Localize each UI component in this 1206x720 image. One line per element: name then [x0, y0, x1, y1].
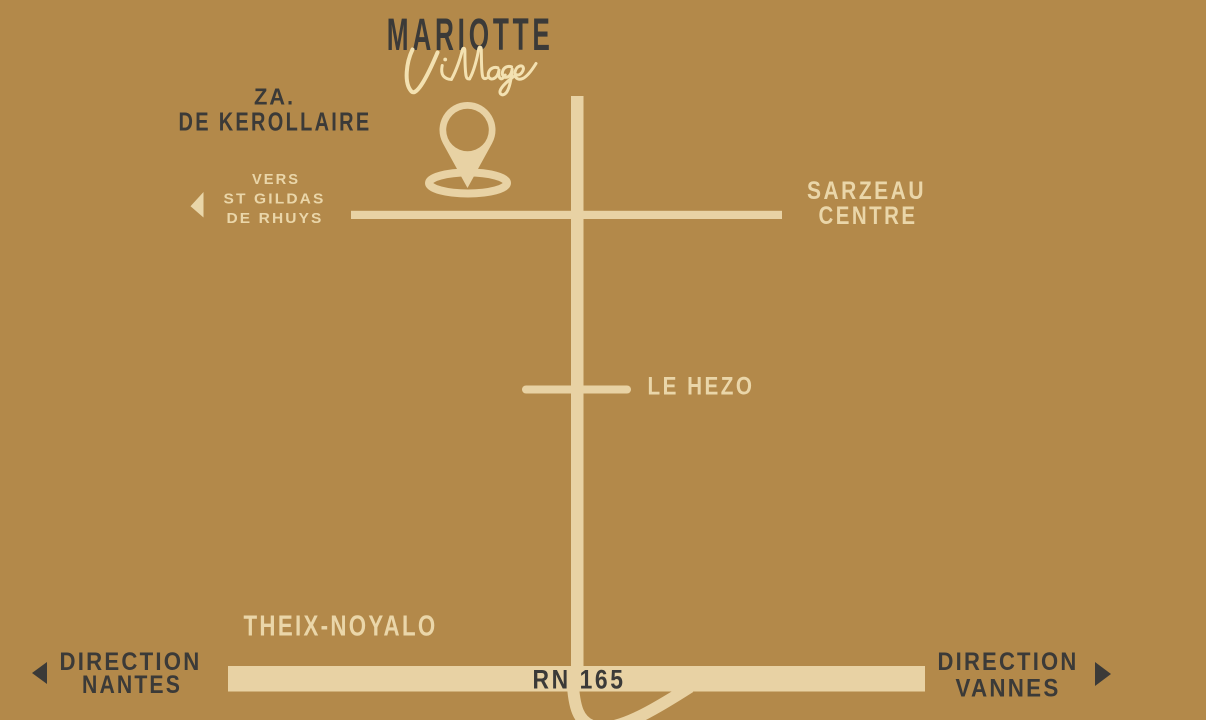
- svg-text:LE HEZO: LE HEZO: [648, 372, 755, 400]
- svg-text:DIRECTION: DIRECTION: [938, 648, 1079, 676]
- svg-text:RN 165: RN 165: [533, 665, 626, 695]
- svg-text:VERS: VERS: [252, 172, 300, 188]
- svg-text:SARZEAU: SARZEAU: [807, 177, 926, 205]
- svg-text:DE KEROLLAIRE: DE KEROLLAIRE: [179, 106, 372, 136]
- svg-text:DE RHUYS: DE RHUYS: [227, 211, 324, 227]
- svg-text:CENTRE: CENTRE: [819, 202, 918, 230]
- svg-text:NANTES: NANTES: [82, 671, 182, 699]
- svg-text:THEIX-NOYALO: THEIX-NOYALO: [244, 611, 438, 643]
- svg-text:ST GILDAS: ST GILDAS: [224, 191, 326, 207]
- svg-text:VANNES: VANNES: [956, 675, 1061, 703]
